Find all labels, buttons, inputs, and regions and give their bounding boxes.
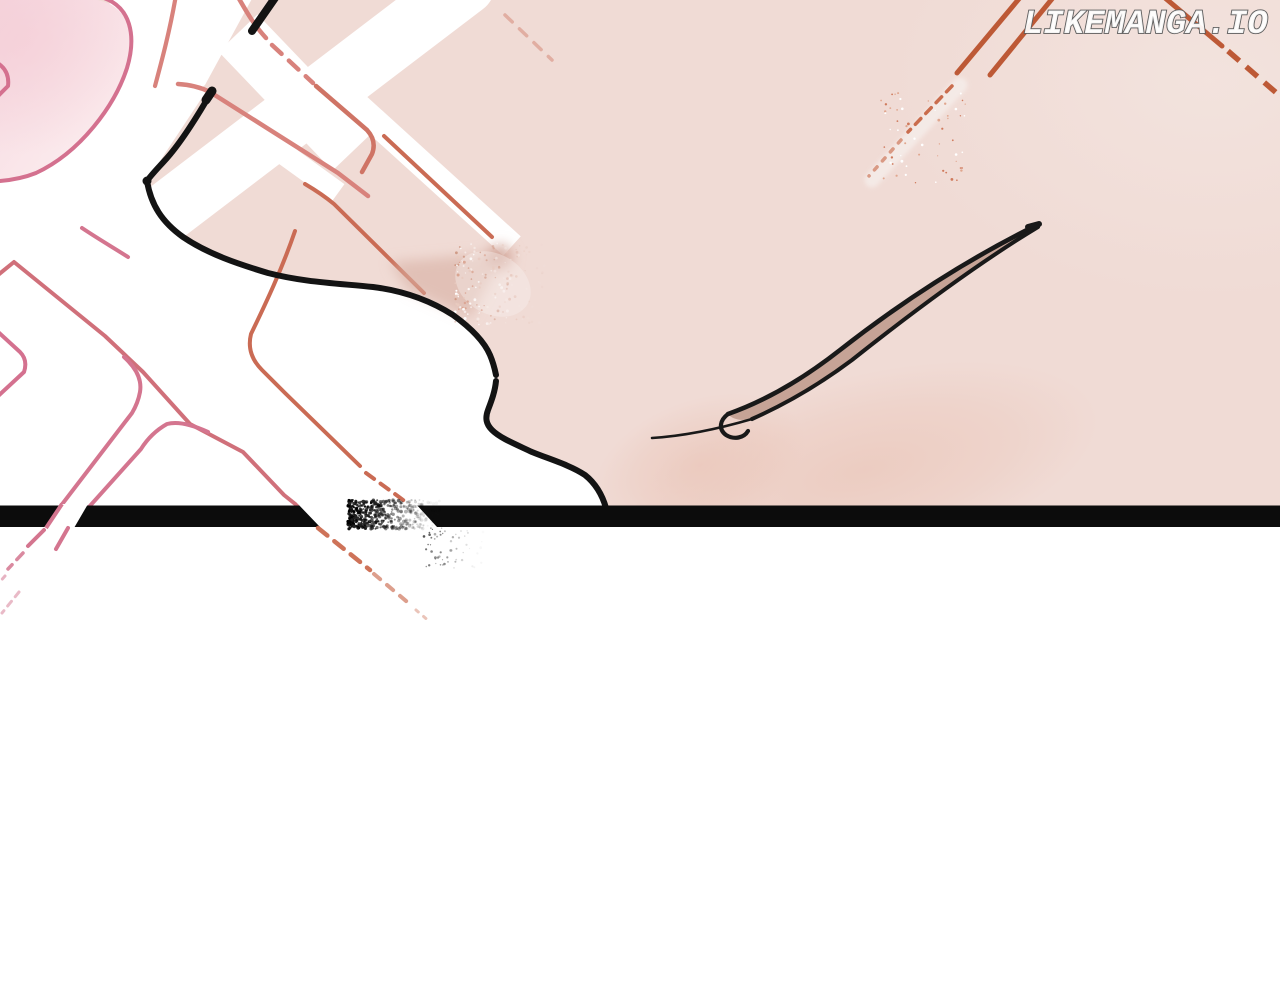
svg-text:LIKEMANGA.IO: LIKEMANGA.IO bbox=[1023, 6, 1268, 44]
